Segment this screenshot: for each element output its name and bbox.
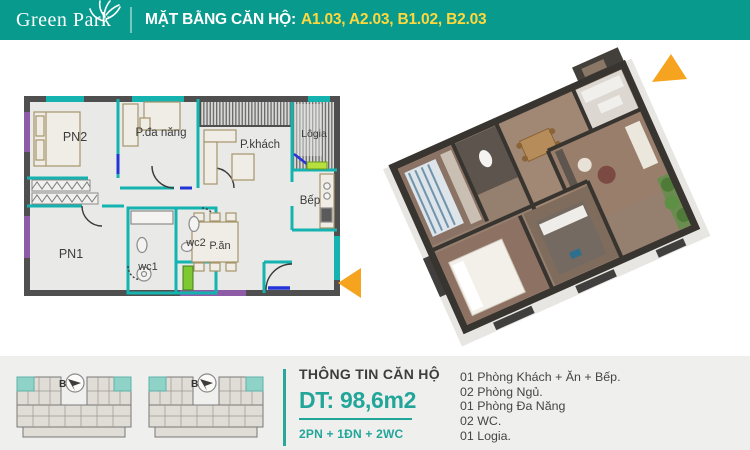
page-title-prefix: MẶT BẰNG CĂN HỘ:	[145, 11, 296, 28]
highlighted-unit	[17, 377, 34, 391]
feature-item: 02 WC.	[460, 414, 621, 429]
info-underline	[299, 418, 412, 420]
unit-codes: A1.03, A2.03, B1.02, B2.03	[301, 11, 487, 28]
room-label-wc2: wc2	[185, 237, 206, 249]
room-label-p-khach: P.khách	[240, 139, 280, 151]
leaf-icon	[88, 0, 122, 29]
highlighted-unit	[246, 377, 263, 391]
page-title: MẶT BẰNG CĂN HỘ:A1.03, A2.03, B1.02, B2.…	[145, 11, 486, 29]
feature-item: 02 Phòng Ngủ.	[460, 385, 621, 400]
room-label-bep: Bếp	[300, 195, 320, 207]
apartment-info: THÔNG TIN CĂN HỘ DT: 98,6m2 2PN + 1ĐN + …	[299, 366, 449, 441]
info-heading: THÔNG TIN CĂN HỘ	[299, 366, 449, 382]
key-plan-label: B	[191, 379, 198, 390]
room-label-p-da-nang: P.đa năng	[136, 127, 187, 139]
feature-item: 01 Logia.	[460, 429, 621, 444]
header-banner: Green Park MẶT BẰNG CĂN HỘ:A1.03, A2.03,…	[0, 0, 750, 40]
entry-arrow-icon	[338, 268, 361, 298]
room-label-pn2: PN2	[63, 130, 87, 144]
up-arrow-icon	[652, 54, 687, 82]
room-label-logia: Lôgia	[301, 128, 327, 140]
compass-icon	[66, 374, 84, 392]
green-park-logo: Green Park	[16, 0, 104, 40]
room-label-wc1: wc1	[137, 261, 158, 273]
highlighted-unit	[149, 377, 166, 391]
room-label-p-an: P.ăn	[209, 240, 230, 252]
highlighted-unit	[114, 377, 131, 391]
compass-icon	[198, 374, 216, 392]
info-area: DT: 98,6m2	[299, 387, 449, 414]
header-divider	[130, 7, 132, 33]
feature-list: 01 Phòng Khách + Ăn + Bếp. 02 Phòng Ngủ.…	[460, 370, 621, 444]
feature-item: 01 Phòng Đa Năng	[460, 399, 621, 414]
key-plan-2: B	[145, 369, 267, 443]
floor-plan-3d	[378, 46, 750, 358]
feature-item: 01 Phòng Khách + Ăn + Bếp.	[460, 370, 621, 385]
key-plan-label: B	[59, 379, 66, 390]
footer-divider	[283, 369, 286, 446]
key-plan-1: B	[13, 369, 135, 443]
room-label-pn1: PN1	[59, 247, 83, 261]
floor-plan-2d: PN2 P.đa năng P.khách Lôgia Bếp PN1 wc1 …	[24, 96, 340, 296]
info-composition: 2PN + 1ĐN + 2WC	[299, 427, 449, 441]
